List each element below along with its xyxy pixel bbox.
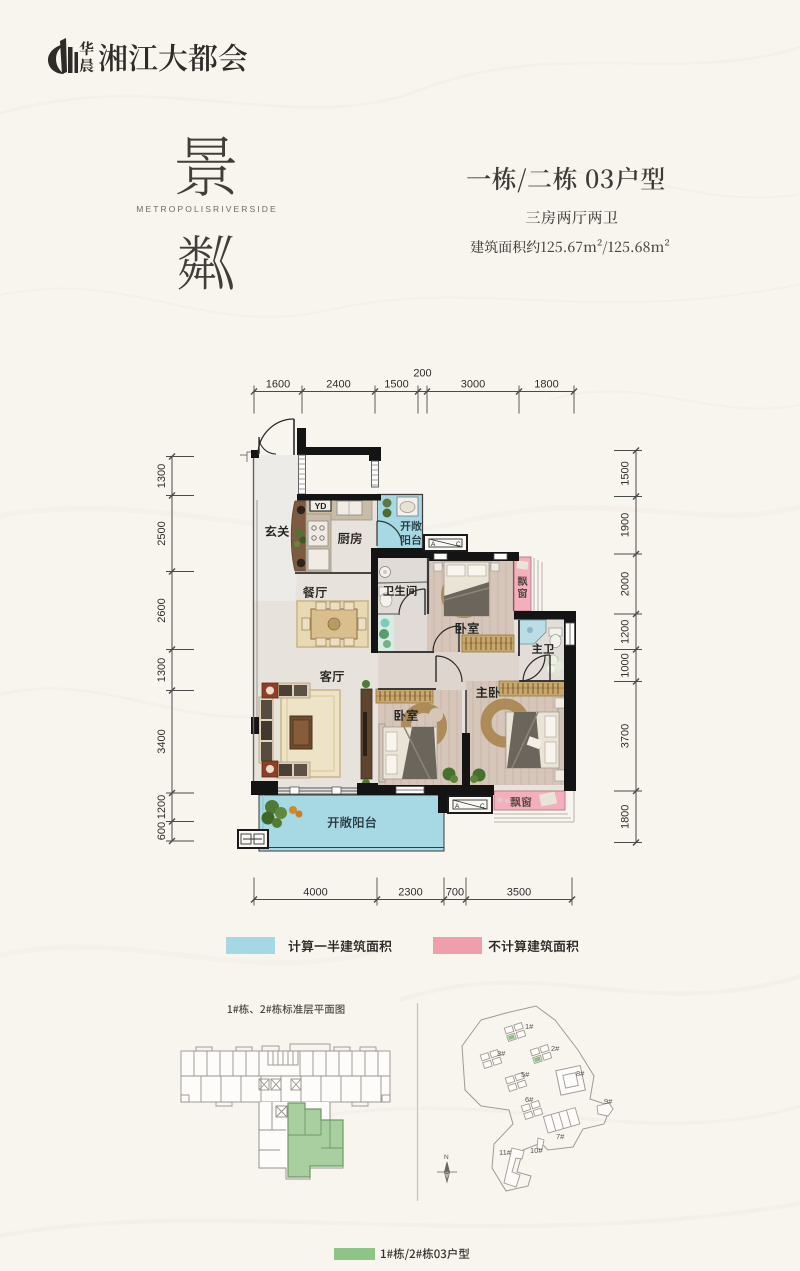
- svg-text:7#: 7#: [556, 1132, 565, 1141]
- svg-text:1#: 1#: [525, 1022, 534, 1031]
- svg-text:N: N: [444, 1154, 449, 1161]
- svg-text:3#: 3#: [497, 1049, 506, 1058]
- svg-text:11#: 11#: [499, 1148, 512, 1157]
- svg-text:2#: 2#: [551, 1044, 560, 1053]
- svg-text:1600: 1600: [266, 379, 290, 391]
- svg-text:2300: 2300: [398, 887, 422, 899]
- svg-text:6#: 6#: [525, 1095, 534, 1104]
- svg-text:1000: 1000: [620, 653, 632, 677]
- svg-text:C: C: [456, 541, 461, 548]
- svg-text:10#: 10#: [530, 1146, 543, 1155]
- svg-text:9#: 9#: [604, 1097, 613, 1106]
- svg-text:1300: 1300: [156, 658, 168, 682]
- svg-text:8#: 8#: [576, 1069, 585, 1078]
- svg-text:1500: 1500: [620, 461, 632, 485]
- svg-text:1800: 1800: [620, 805, 632, 829]
- svg-text:2600: 2600: [156, 598, 168, 622]
- svg-text:2500: 2500: [156, 521, 168, 545]
- svg-text:5#: 5#: [521, 1070, 530, 1079]
- svg-text:2000: 2000: [620, 572, 632, 596]
- svg-text:METROPOLISRIVERSIDE: METROPOLISRIVERSIDE: [136, 204, 277, 214]
- svg-text:YD: YD: [315, 501, 327, 511]
- svg-text:1900: 1900: [620, 513, 632, 537]
- svg-text:A: A: [431, 541, 436, 548]
- svg-text:1200: 1200: [156, 795, 168, 819]
- svg-text:1500: 1500: [384, 379, 408, 391]
- svg-text:700: 700: [446, 887, 464, 899]
- svg-text:1300: 1300: [156, 464, 168, 488]
- svg-text:4000: 4000: [303, 887, 327, 899]
- svg-text:1200: 1200: [620, 620, 632, 644]
- svg-text:200: 200: [413, 368, 431, 380]
- svg-text:3400: 3400: [156, 729, 168, 753]
- svg-text:3500: 3500: [507, 887, 531, 899]
- svg-text:A: A: [455, 803, 460, 810]
- svg-text:2400: 2400: [326, 379, 350, 391]
- svg-text:1800: 1800: [534, 379, 558, 391]
- svg-text:3700: 3700: [620, 724, 632, 748]
- svg-text:C: C: [480, 803, 485, 810]
- svg-text:600: 600: [156, 822, 168, 840]
- svg-text:3000: 3000: [461, 379, 485, 391]
